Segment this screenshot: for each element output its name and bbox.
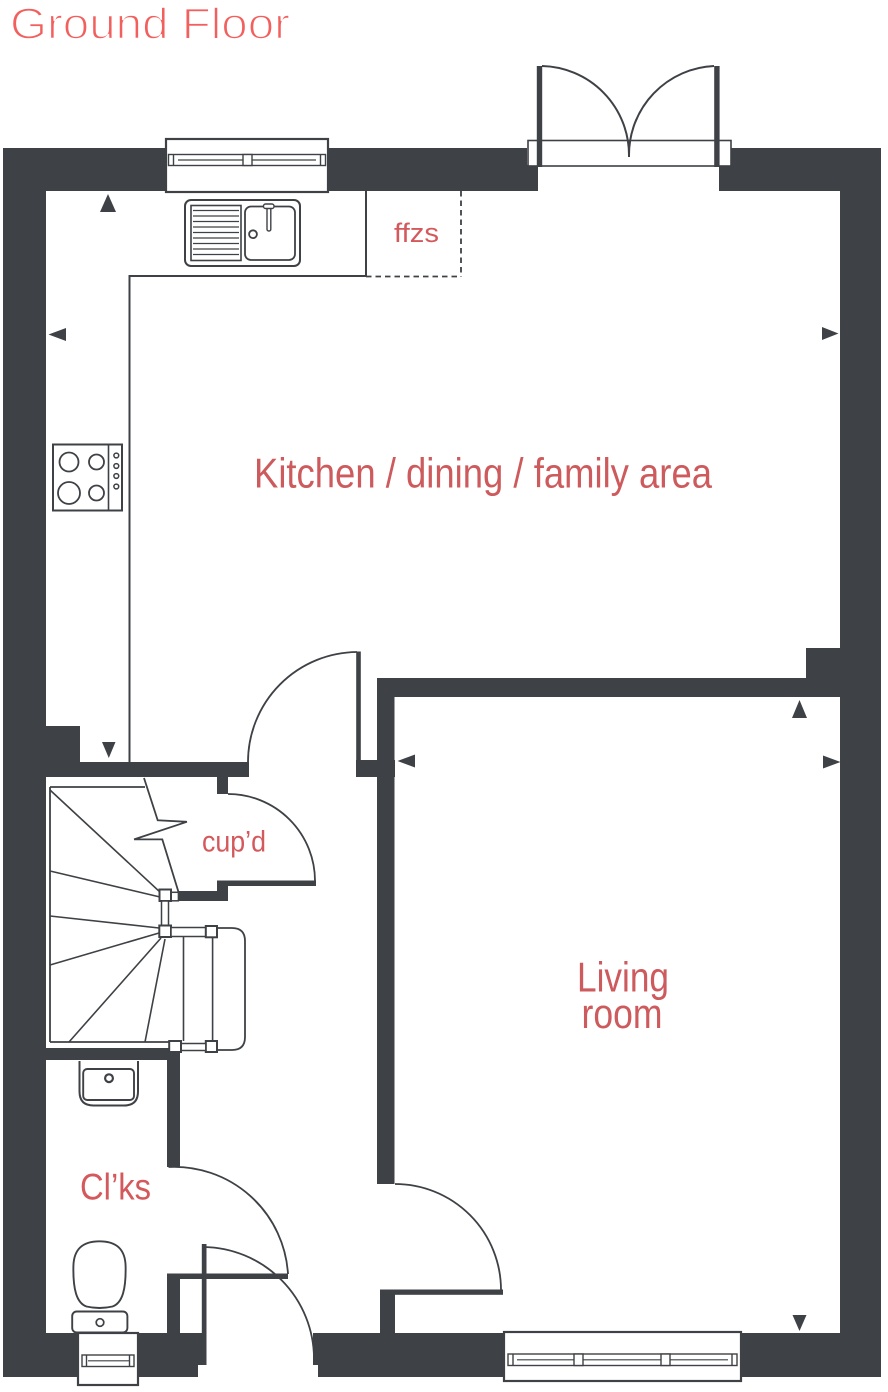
- svg-text:cup’d: cup’d: [202, 826, 266, 859]
- svg-text:Kitchen / dining / family area: Kitchen / dining / family area: [254, 450, 713, 497]
- svg-text:Ground Floor: Ground Floor: [10, 0, 290, 49]
- svg-text:room: room: [582, 990, 663, 1037]
- svg-text:ffzs: ffzs: [394, 218, 439, 248]
- svg-text:Cl’ks: Cl’ks: [80, 1167, 151, 1208]
